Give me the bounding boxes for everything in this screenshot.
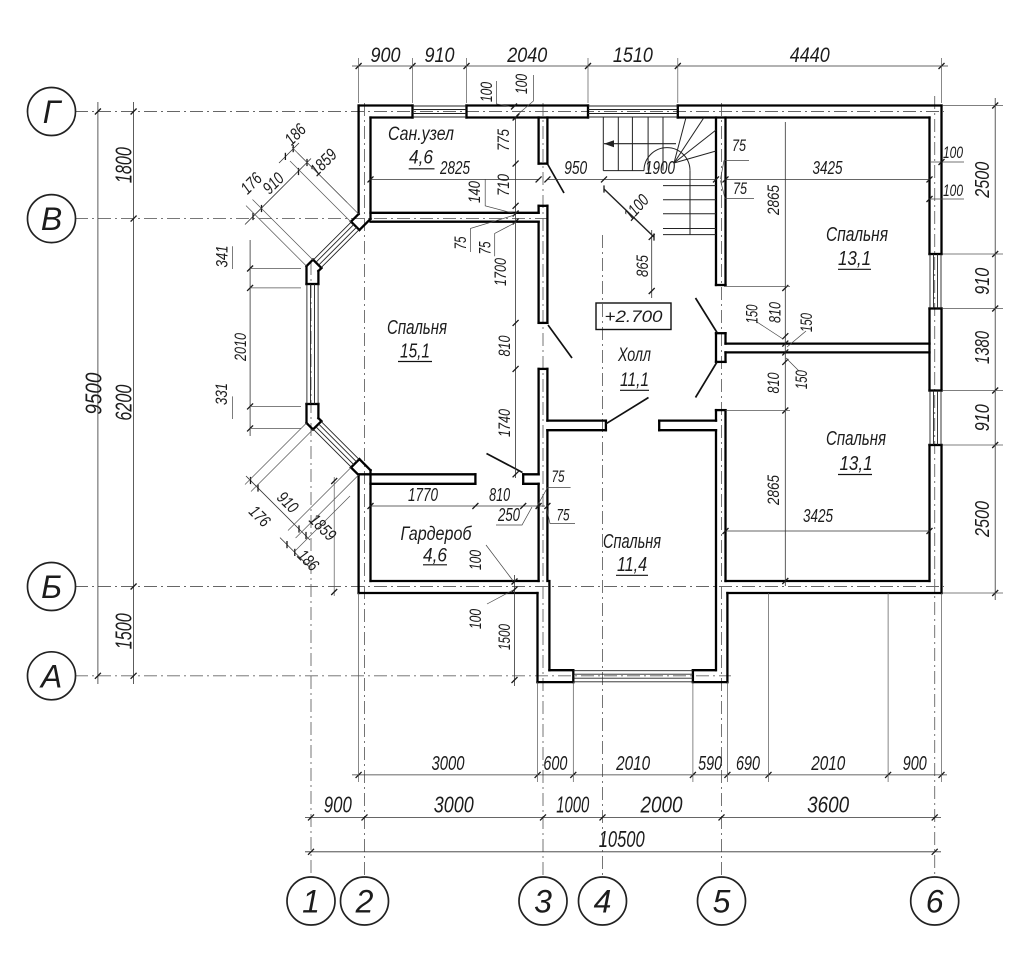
svg-text:2: 2 (355, 884, 374, 920)
svg-text:1510: 1510 (613, 44, 653, 67)
svg-text:75: 75 (557, 506, 570, 525)
svg-text:4,6: 4,6 (409, 148, 433, 169)
svg-text:Спальня: Спальня (826, 428, 886, 450)
svg-text:1770: 1770 (408, 485, 438, 505)
svg-text:2500: 2500 (972, 162, 994, 199)
svg-text:100: 100 (477, 82, 496, 102)
svg-text:910: 910 (425, 44, 455, 67)
svg-text:2010: 2010 (231, 333, 250, 362)
svg-text:Спальня: Спальня (826, 224, 888, 246)
svg-text:900: 900 (903, 753, 927, 775)
svg-text:В: В (41, 201, 62, 237)
svg-text:331: 331 (212, 383, 231, 405)
svg-text:1700: 1700 (491, 258, 510, 286)
svg-text:150: 150 (743, 304, 762, 323)
svg-text:3000: 3000 (434, 791, 474, 817)
svg-text:3000: 3000 (432, 753, 465, 775)
svg-text:Г: Г (43, 94, 63, 130)
svg-text:590: 590 (698, 753, 722, 775)
svg-text:100: 100 (512, 74, 531, 94)
svg-text:1740: 1740 (495, 409, 514, 437)
svg-text:3425: 3425 (813, 158, 844, 178)
svg-text:75: 75 (732, 136, 746, 155)
svg-text:1900: 1900 (645, 158, 675, 178)
svg-text:810: 810 (495, 335, 514, 356)
svg-text:690: 690 (736, 753, 760, 775)
svg-text:11,4: 11,4 (617, 554, 647, 576)
svg-text:+2.700: +2.700 (605, 307, 664, 326)
svg-text:Гардероб: Гардероб (401, 524, 473, 545)
svg-text:15,1: 15,1 (400, 341, 430, 363)
svg-text:2825: 2825 (439, 158, 470, 178)
svg-text:150: 150 (797, 313, 816, 332)
svg-text:1500: 1500 (495, 624, 514, 650)
svg-text:2865: 2865 (764, 185, 783, 216)
svg-text:10500: 10500 (599, 826, 645, 852)
svg-text:1800: 1800 (110, 147, 136, 183)
svg-text:810: 810 (764, 372, 783, 393)
svg-text:100: 100 (466, 550, 485, 570)
svg-text:710: 710 (494, 174, 513, 196)
svg-text:2010: 2010 (615, 753, 650, 775)
svg-text:Холл: Холл (617, 345, 651, 366)
svg-text:75: 75 (552, 467, 565, 486)
svg-text:11,1: 11,1 (620, 370, 649, 391)
svg-text:2500: 2500 (972, 501, 994, 538)
svg-text:950: 950 (564, 158, 587, 178)
svg-text:1: 1 (302, 884, 320, 920)
svg-text:810: 810 (489, 485, 510, 505)
svg-text:910: 910 (972, 268, 994, 295)
svg-text:775: 775 (494, 129, 513, 151)
svg-text:341: 341 (213, 246, 232, 268)
svg-text:600: 600 (543, 753, 567, 775)
svg-text:Спальня: Спальня (603, 531, 661, 553)
svg-text:100: 100 (943, 143, 963, 162)
svg-text:910: 910 (972, 404, 994, 431)
svg-text:3600: 3600 (807, 791, 849, 817)
svg-text:2000: 2000 (640, 791, 683, 817)
svg-text:2865: 2865 (764, 475, 783, 506)
svg-text:3425: 3425 (803, 506, 834, 526)
svg-text:4: 4 (594, 884, 612, 920)
svg-text:13,1: 13,1 (838, 248, 871, 270)
svg-text:865: 865 (633, 255, 652, 277)
svg-text:900: 900 (371, 44, 401, 67)
svg-text:Б: Б (41, 569, 62, 605)
svg-text:5: 5 (713, 884, 731, 920)
svg-text:2040: 2040 (506, 44, 547, 67)
svg-text:3: 3 (534, 884, 552, 920)
svg-text:6200: 6200 (110, 384, 136, 420)
svg-text:100: 100 (943, 181, 963, 200)
svg-text:900: 900 (324, 791, 352, 817)
svg-text:9500: 9500 (80, 372, 106, 414)
svg-text:75: 75 (733, 179, 747, 198)
svg-text:4440: 4440 (790, 44, 830, 67)
svg-text:Сан.узел: Сан.узел (388, 124, 454, 145)
svg-text:А: А (39, 658, 62, 694)
svg-text:150: 150 (792, 370, 811, 389)
svg-text:1500: 1500 (110, 613, 136, 649)
svg-text:140: 140 (465, 181, 484, 203)
svg-text:100: 100 (466, 609, 485, 629)
svg-text:4,6: 4,6 (423, 546, 447, 567)
svg-text:810: 810 (766, 302, 785, 323)
svg-text:250: 250 (497, 505, 520, 525)
svg-text:75: 75 (451, 236, 470, 249)
svg-text:1380: 1380 (972, 331, 994, 364)
svg-text:2010: 2010 (811, 753, 846, 775)
svg-text:13,1: 13,1 (840, 453, 873, 475)
svg-text:Спальня: Спальня (387, 317, 447, 339)
svg-text:75: 75 (476, 241, 495, 254)
svg-text:1000: 1000 (556, 791, 589, 817)
svg-text:6: 6 (926, 884, 944, 920)
